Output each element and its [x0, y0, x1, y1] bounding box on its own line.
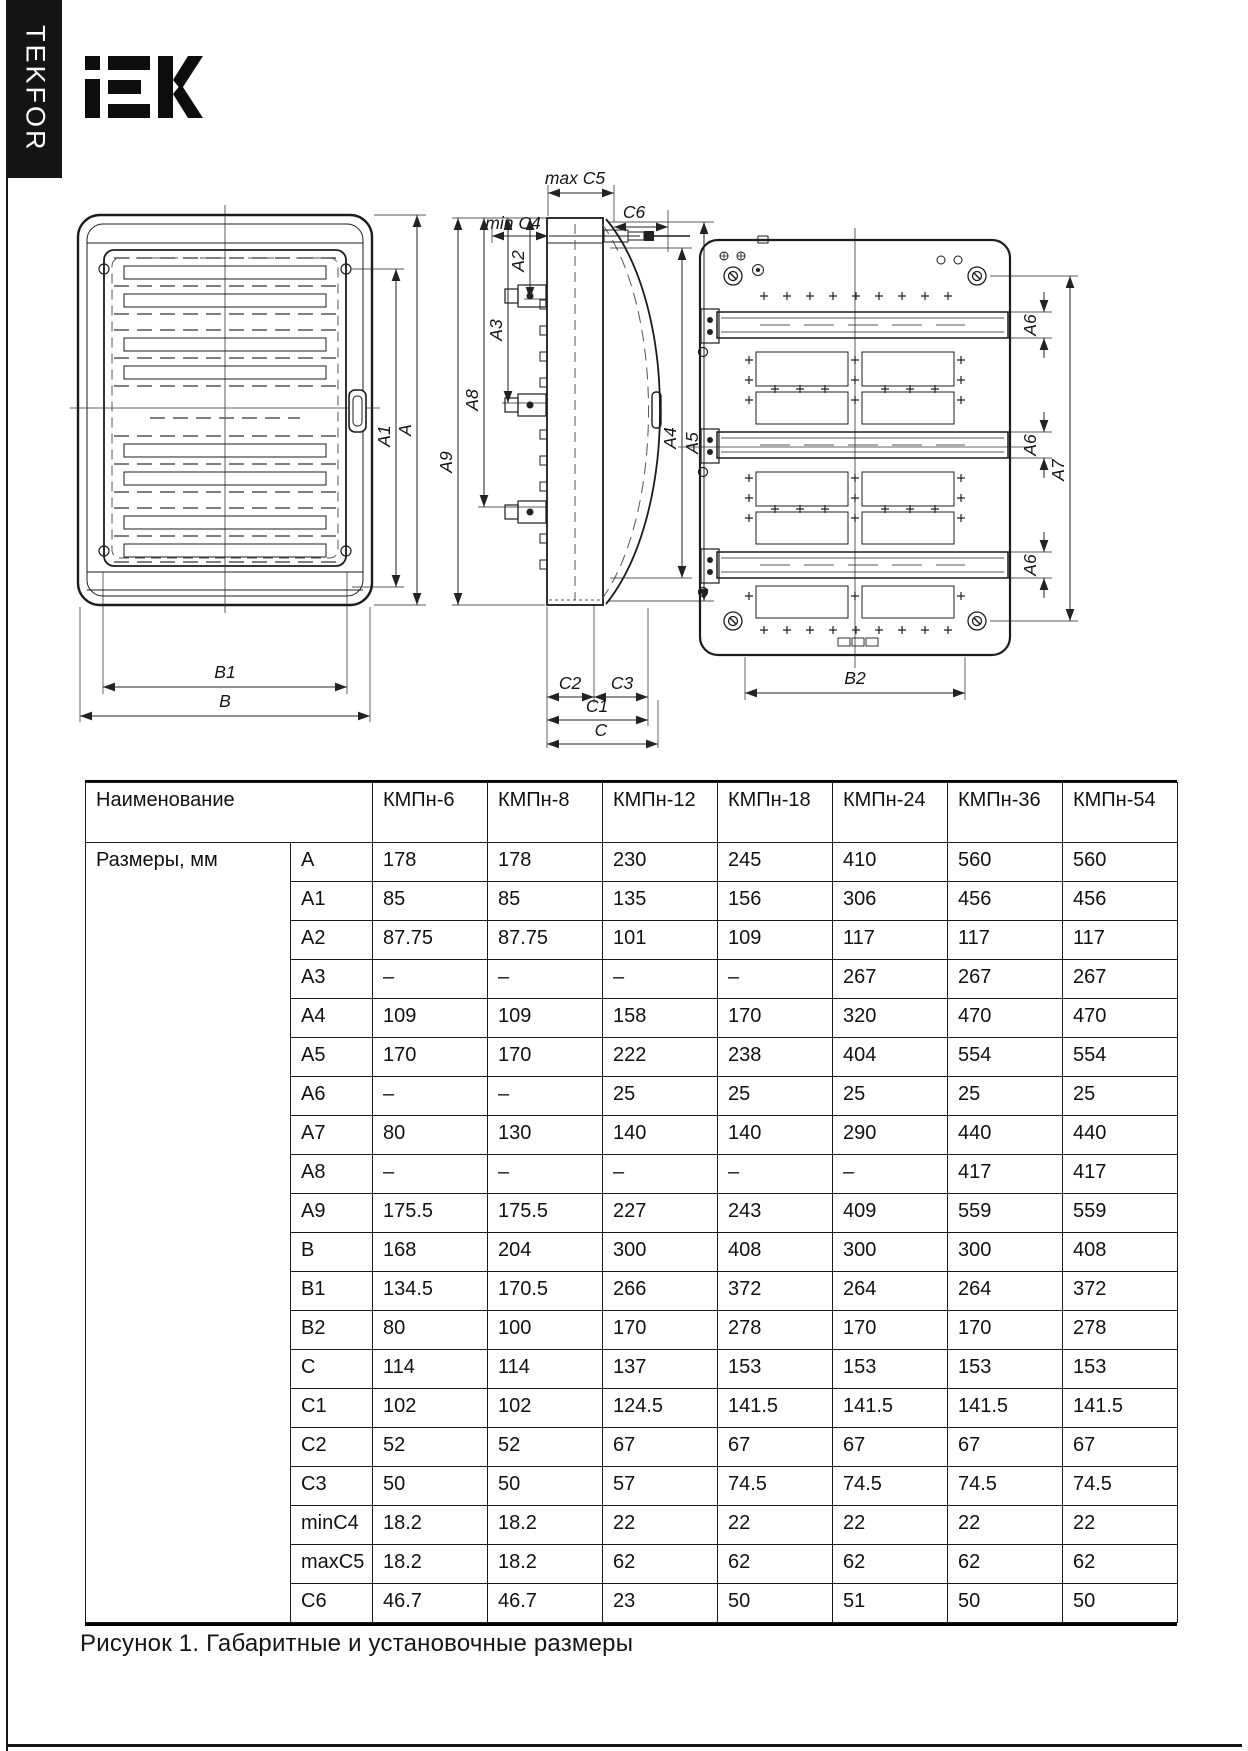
- table-header-row: Наименование КМПн-6КМПн-8КМПн-12КМПн-18К…: [86, 783, 1178, 843]
- dimension-name-cell: B: [291, 1233, 373, 1272]
- dimension-value-cell: 227: [603, 1194, 718, 1233]
- dimension-value-cell: 170: [718, 999, 833, 1038]
- model-column-header: КМПн-24: [833, 783, 948, 843]
- dimension-value-cell: 170: [373, 1038, 488, 1077]
- catalog-page: TEKFOR: [0, 0, 1248, 1751]
- dimension-value-cell: 50: [948, 1584, 1063, 1623]
- dimension-value-cell: 372: [718, 1272, 833, 1311]
- dimension-value-cell: 85: [488, 882, 603, 921]
- iek-logo-glyphs: [85, 56, 203, 118]
- dimension-value-cell: 18.2: [488, 1506, 603, 1545]
- dimension-value-cell: 170: [488, 1038, 603, 1077]
- dimension-value-cell: 175.5: [488, 1194, 603, 1233]
- dimension-value-cell: 320: [833, 999, 948, 1038]
- figure-caption: Рисунок 1. Габаритные и установочные раз…: [80, 1630, 633, 1658]
- dimension-value-cell: 74.5: [718, 1467, 833, 1506]
- dimension-value-cell: 52: [488, 1428, 603, 1467]
- dimension-value-cell: 140: [603, 1116, 718, 1155]
- dimension-value-cell: 57: [603, 1467, 718, 1506]
- dimension-value-cell: 114: [488, 1350, 603, 1389]
- dimension-value-cell: 156: [718, 882, 833, 921]
- side-mounting-teeth: [540, 300, 547, 569]
- dimension-value-cell: 267: [948, 960, 1063, 999]
- dimension-value-cell: 404: [833, 1038, 948, 1077]
- dimension-value-cell: 102: [488, 1389, 603, 1428]
- rail-bracket: [699, 429, 720, 477]
- dimension-value-cell: 46.7: [373, 1584, 488, 1623]
- dimension-value-cell: 18.2: [488, 1545, 603, 1584]
- dimension-value-cell: 22: [718, 1506, 833, 1545]
- dimension-value-cell: 74.5: [833, 1467, 948, 1506]
- dim-label-a6: A6: [1020, 554, 1040, 577]
- dimension-name-cell: C1: [291, 1389, 373, 1428]
- dimension-name-cell: C: [291, 1350, 373, 1389]
- model-column-header: КМПн-6: [373, 783, 488, 843]
- dimension-value-cell: 230: [603, 843, 718, 882]
- dimension-value-cell: 135: [603, 882, 718, 921]
- dimension-value-cell: 267: [833, 960, 948, 999]
- dimension-value-cell: 372: [1063, 1272, 1178, 1311]
- dim-label-a3: A3: [486, 319, 506, 342]
- dimension-value-cell: 153: [833, 1350, 948, 1389]
- dimension-value-cell: 51: [833, 1584, 948, 1623]
- dimension-value-cell: 114: [373, 1350, 488, 1389]
- dim-label-b2: B2: [844, 668, 866, 688]
- side-rail-bracket: [505, 394, 546, 416]
- din-rail: [717, 552, 1008, 578]
- dimension-value-cell: 290: [833, 1116, 948, 1155]
- dimension-value-cell: 100: [488, 1311, 603, 1350]
- dimension-value-cell: 25: [948, 1077, 1063, 1116]
- page-border-bottom: [6, 1744, 1242, 1747]
- dimension-value-cell: 87.75: [373, 921, 488, 960]
- dimension-value-cell: 300: [603, 1233, 718, 1272]
- page-border-left: [6, 0, 8, 1751]
- dimensions-table: Наименование КМПн-6КМПн-8КМПн-12КМПн-18К…: [85, 780, 1177, 1626]
- dimension-value-cell: 62: [833, 1545, 948, 1584]
- dimension-name-cell: A8: [291, 1155, 373, 1194]
- dim-label-c2: C2: [559, 673, 582, 693]
- dimension-value-cell: 410: [833, 843, 948, 882]
- dimension-value-cell: –: [488, 1155, 603, 1194]
- dimension-value-cell: 67: [603, 1428, 718, 1467]
- dimension-name-cell: B1: [291, 1272, 373, 1311]
- dimension-value-cell: 109: [373, 999, 488, 1038]
- dimension-value-cell: 22: [603, 1506, 718, 1545]
- dimension-value-cell: 141.5: [833, 1389, 948, 1428]
- dimension-name-cell: A9: [291, 1194, 373, 1233]
- dimension-value-cell: –: [488, 1077, 603, 1116]
- dimension-value-cell: 117: [833, 921, 948, 960]
- dimension-value-cell: 417: [1063, 1155, 1178, 1194]
- dimension-value-cell: 18.2: [373, 1506, 488, 1545]
- iek-logo: [85, 56, 203, 118]
- dimension-value-cell: 222: [603, 1038, 718, 1077]
- dimension-value-cell: –: [718, 960, 833, 999]
- dimension-value-cell: –: [488, 960, 603, 999]
- front-view: [70, 205, 380, 613]
- dimension-value-cell: 18.2: [373, 1545, 488, 1584]
- dimension-value-cell: 456: [1063, 882, 1178, 921]
- dimension-name-cell: maxC5: [291, 1545, 373, 1584]
- dimension-value-cell: 74.5: [1063, 1467, 1178, 1506]
- side-view: [505, 218, 690, 605]
- dimension-value-cell: 278: [718, 1311, 833, 1350]
- dimension-value-cell: 559: [948, 1194, 1063, 1233]
- tekfor-sidebar-label: TEKFOR: [20, 25, 51, 153]
- dimension-value-cell: –: [373, 1077, 488, 1116]
- dimension-name-cell: C3: [291, 1467, 373, 1506]
- dimension-value-cell: 87.75: [488, 921, 603, 960]
- dimension-value-cell: 178: [488, 843, 603, 882]
- dimension-name-cell: A2: [291, 921, 373, 960]
- front-door-handle: [349, 390, 366, 432]
- dimension-value-cell: 141.5: [718, 1389, 833, 1428]
- dimension-value-cell: 62: [948, 1545, 1063, 1584]
- dimension-value-cell: 266: [603, 1272, 718, 1311]
- dimension-value-cell: 80: [373, 1311, 488, 1350]
- dimension-value-cell: 117: [948, 921, 1063, 960]
- dimension-value-cell: 134.5: [373, 1272, 488, 1311]
- din-rail: [717, 432, 1008, 458]
- dimension-value-cell: –: [373, 960, 488, 999]
- name-column-header: Наименование: [86, 783, 373, 843]
- dim-label-b: B: [219, 691, 231, 711]
- dim-label-a4: A4: [660, 427, 680, 450]
- dim-label-a6: A6: [1020, 434, 1040, 457]
- dimension-value-cell: 74.5: [948, 1467, 1063, 1506]
- dimension-value-cell: 137: [603, 1350, 718, 1389]
- dimension-value-cell: 245: [718, 843, 833, 882]
- model-column-header: КМПн-8: [488, 783, 603, 843]
- dimension-value-cell: 52: [373, 1428, 488, 1467]
- rail-bracket: [699, 549, 720, 597]
- dim-label-c: C: [595, 720, 608, 740]
- dimension-name-cell: C6: [291, 1584, 373, 1623]
- dimension-value-cell: 25: [603, 1077, 718, 1116]
- dimension-value-cell: 80: [373, 1116, 488, 1155]
- dimension-value-cell: –: [833, 1155, 948, 1194]
- dimension-name-cell: A1: [291, 882, 373, 921]
- dimension-name-cell: A5: [291, 1038, 373, 1077]
- dimension-value-cell: 170: [603, 1311, 718, 1350]
- dimension-name-cell: minC4: [291, 1506, 373, 1545]
- dimension-name-cell: B2: [291, 1311, 373, 1350]
- dim-label-max-c5: max C5: [545, 168, 606, 188]
- row-group-label: Размеры, мм: [86, 843, 291, 1623]
- dim-label-c6: C6: [623, 202, 646, 222]
- dimension-value-cell: 25: [718, 1077, 833, 1116]
- dimension-value-cell: 67: [948, 1428, 1063, 1467]
- rail-bracket: [699, 309, 720, 357]
- dimension-value-cell: 62: [1063, 1545, 1178, 1584]
- dimension-value-cell: 470: [1063, 999, 1178, 1038]
- dimension-value-cell: 153: [718, 1350, 833, 1389]
- dimension-value-cell: 130: [488, 1116, 603, 1155]
- dimension-value-cell: 440: [1063, 1116, 1178, 1155]
- dimension-value-cell: 67: [1063, 1428, 1178, 1467]
- dimension-value-cell: 117: [1063, 921, 1178, 960]
- dimension-value-cell: 22: [833, 1506, 948, 1545]
- dimension-name-cell: A: [291, 843, 373, 882]
- dim-label-a8: A8: [462, 389, 482, 412]
- dimension-value-cell: 141.5: [948, 1389, 1063, 1428]
- dimension-value-cell: 67: [833, 1428, 948, 1467]
- dimension-value-cell: 46.7: [488, 1584, 603, 1623]
- dimension-value-cell: 264: [833, 1272, 948, 1311]
- dim-label-c3: C3: [611, 673, 634, 693]
- figure-drawings: A1 A B1 B: [60, 150, 1200, 770]
- dimension-value-cell: 62: [718, 1545, 833, 1584]
- dimension-value-cell: 300: [948, 1233, 1063, 1272]
- side-screw-assembly: [549, 230, 690, 242]
- dimension-name-cell: A3: [291, 960, 373, 999]
- dim-label-a1: A1: [374, 425, 394, 447]
- dimension-name-cell: A4: [291, 999, 373, 1038]
- dim-label-a: A: [395, 424, 415, 437]
- dimension-value-cell: 408: [718, 1233, 833, 1272]
- dimension-value-cell: 23: [603, 1584, 718, 1623]
- dimension-value-cell: 306: [833, 882, 948, 921]
- dimension-value-cell: 554: [948, 1038, 1063, 1077]
- dim-label-b1: B1: [214, 662, 235, 682]
- dimension-value-cell: 178: [373, 843, 488, 882]
- dimension-value-cell: 560: [948, 843, 1063, 882]
- dimension-value-cell: –: [718, 1155, 833, 1194]
- corner-screw-cluster: [720, 252, 962, 276]
- dimension-value-cell: 204: [488, 1233, 603, 1272]
- dim-label-a6: A6: [1020, 314, 1040, 337]
- dimension-value-cell: 153: [1063, 1350, 1178, 1389]
- dim-label-a7: A7: [1048, 458, 1068, 482]
- dimension-value-cell: 559: [1063, 1194, 1178, 1233]
- front-view-dimensions: A1 A B1 B: [80, 215, 426, 722]
- dimension-value-cell: 243: [718, 1194, 833, 1233]
- bottom-emblem: [838, 638, 878, 646]
- dimension-value-cell: 554: [1063, 1038, 1178, 1077]
- dimension-value-cell: 22: [948, 1506, 1063, 1545]
- dimension-value-cell: 25: [1063, 1077, 1178, 1116]
- dimension-value-cell: 140: [718, 1116, 833, 1155]
- dimension-value-cell: 560: [1063, 843, 1178, 882]
- model-column-header: КМПн-36: [948, 783, 1063, 843]
- dimension-value-cell: –: [603, 1155, 718, 1194]
- dimension-value-cell: 456: [948, 882, 1063, 921]
- dimension-value-cell: 440: [948, 1116, 1063, 1155]
- dimension-value-cell: 50: [1063, 1584, 1178, 1623]
- din-rail: [717, 312, 1008, 338]
- dimension-value-cell: 417: [948, 1155, 1063, 1194]
- dimension-value-cell: 109: [718, 921, 833, 960]
- dim-label-a2: A2: [508, 250, 528, 273]
- model-column-header: КМПн-18: [718, 783, 833, 843]
- dim-label-min-c4: min C4: [485, 213, 541, 233]
- dimension-value-cell: 109: [488, 999, 603, 1038]
- dimension-value-cell: –: [603, 960, 718, 999]
- dimension-value-cell: 238: [718, 1038, 833, 1077]
- dimension-value-cell: 168: [373, 1233, 488, 1272]
- dimensions-table-body: Размеры, ммA178178230245410560560A185851…: [86, 843, 1178, 1623]
- table-row: Размеры, ммA178178230245410560560: [86, 843, 1178, 882]
- dimension-value-cell: 175.5: [373, 1194, 488, 1233]
- tekfor-sidebar: TEKFOR: [8, 0, 62, 178]
- model-column-header: КМПн-12: [603, 783, 718, 843]
- dimension-value-cell: 170: [833, 1311, 948, 1350]
- back-view: [678, 228, 1032, 668]
- dimension-value-cell: 141.5: [1063, 1389, 1178, 1428]
- dimension-value-cell: 50: [488, 1467, 603, 1506]
- dimension-value-cell: 170: [948, 1311, 1063, 1350]
- dimension-value-cell: 62: [603, 1545, 718, 1584]
- dimension-value-cell: 50: [718, 1584, 833, 1623]
- dimension-value-cell: 101: [603, 921, 718, 960]
- dimension-value-cell: 267: [1063, 960, 1178, 999]
- dimension-value-cell: 124.5: [603, 1389, 718, 1428]
- dimension-value-cell: 470: [948, 999, 1063, 1038]
- dimension-value-cell: 158: [603, 999, 718, 1038]
- dimension-value-cell: 408: [1063, 1233, 1178, 1272]
- dimension-name-cell: A6: [291, 1077, 373, 1116]
- dimension-value-cell: 50: [373, 1467, 488, 1506]
- dimension-name-cell: C2: [291, 1428, 373, 1467]
- dimension-value-cell: 170.5: [488, 1272, 603, 1311]
- dimension-value-cell: 67: [718, 1428, 833, 1467]
- dimension-value-cell: –: [373, 1155, 488, 1194]
- dim-label-c1: C1: [586, 696, 608, 716]
- dimension-value-cell: 85: [373, 882, 488, 921]
- side-rail-bracket: [505, 501, 546, 523]
- dimension-value-cell: 153: [948, 1350, 1063, 1389]
- dim-label-a9: A9: [436, 451, 456, 474]
- model-column-header: КМПн-54: [1063, 783, 1178, 843]
- dimension-value-cell: 264: [948, 1272, 1063, 1311]
- dimension-value-cell: 278: [1063, 1311, 1178, 1350]
- dimension-value-cell: 102: [373, 1389, 488, 1428]
- dimension-name-cell: A7: [291, 1116, 373, 1155]
- dimension-value-cell: 22: [1063, 1506, 1178, 1545]
- dimension-value-cell: 25: [833, 1077, 948, 1116]
- dimension-value-cell: 300: [833, 1233, 948, 1272]
- dimension-value-cell: 409: [833, 1194, 948, 1233]
- back-view-dimensions: A6 A6 A6 A7 B2: [745, 276, 1078, 700]
